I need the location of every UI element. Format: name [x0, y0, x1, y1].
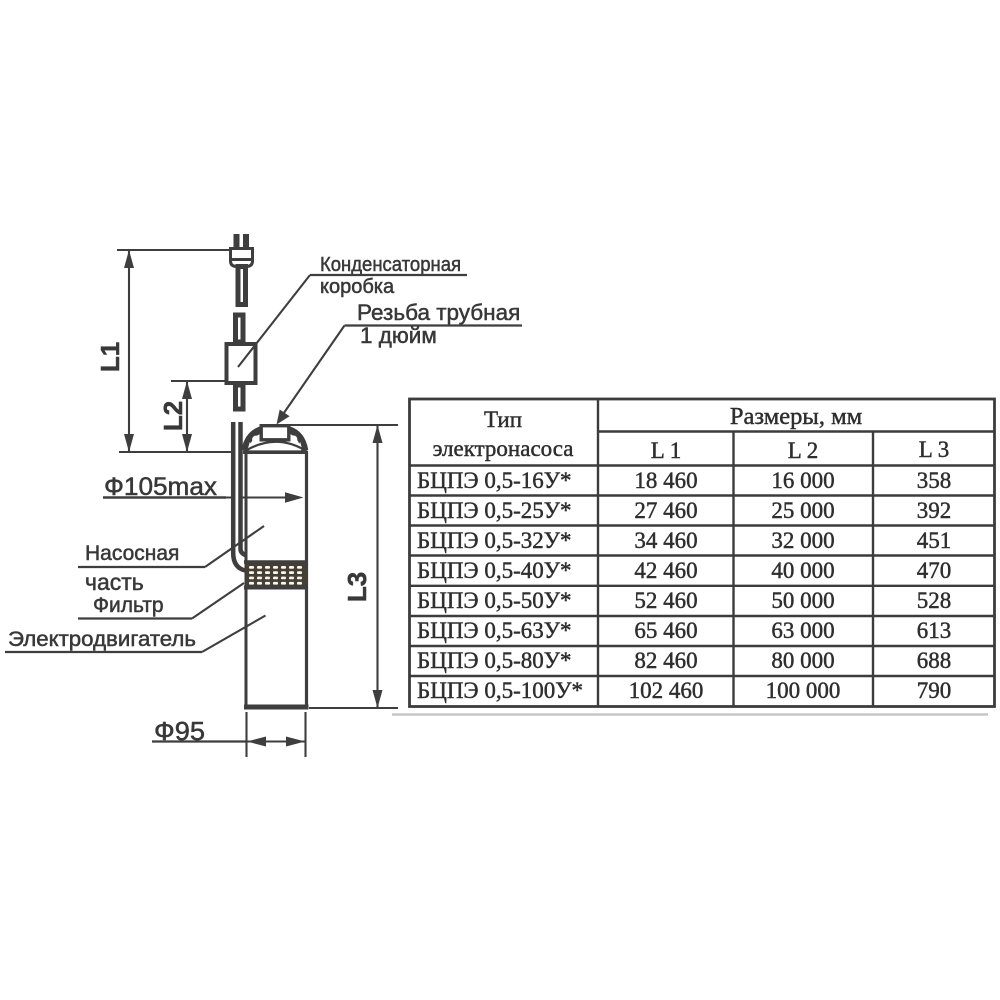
- svg-text:БЦПЭ 0,5-50У*: БЦПЭ 0,5-50У*: [417, 588, 572, 613]
- svg-text:42 460: 42 460: [634, 558, 697, 583]
- svg-text:613: 613: [917, 618, 952, 643]
- svg-text:БЦПЭ 0,5-63У*: БЦПЭ 0,5-63У*: [417, 618, 572, 643]
- svg-text:32 000: 32 000: [771, 528, 834, 553]
- svg-text:коробка: коробка: [320, 276, 395, 298]
- svg-text:L1: L1: [95, 342, 125, 372]
- svg-text:Насосная: Насосная: [85, 542, 179, 565]
- svg-text:392: 392: [917, 498, 952, 523]
- svg-text:Фильтр: Фильтр: [93, 594, 164, 617]
- svg-text:40 000: 40 000: [771, 558, 834, 583]
- svg-text:Электродвигатель: Электродвигатель: [8, 627, 196, 651]
- svg-text:Тип: Тип: [484, 407, 522, 432]
- svg-text:Ф95: Ф95: [154, 716, 205, 746]
- svg-text:102 460: 102 460: [629, 678, 704, 703]
- svg-text:34 460: 34 460: [634, 528, 697, 553]
- svg-text:L 1: L 1: [651, 438, 681, 463]
- svg-text:18 460: 18 460: [634, 468, 697, 493]
- svg-text:688: 688: [917, 648, 952, 673]
- svg-text:27 460: 27 460: [634, 498, 697, 523]
- svg-text:528: 528: [917, 588, 952, 613]
- svg-text:Резьба трубная: Резьба трубная: [357, 300, 520, 325]
- svg-text:470: 470: [917, 558, 952, 583]
- svg-text:16 000: 16 000: [771, 468, 834, 493]
- svg-text:L 2: L 2: [788, 438, 818, 463]
- svg-text:L 3: L 3: [919, 437, 949, 462]
- svg-text:358: 358: [917, 468, 952, 493]
- svg-text:L2: L2: [158, 401, 188, 431]
- svg-text:Конденсаторная: Конденсаторная: [320, 254, 461, 276]
- svg-text:Размеры, мм: Размеры, мм: [730, 403, 862, 430]
- svg-text:БЦПЭ 0,5-16У*: БЦПЭ 0,5-16У*: [417, 468, 572, 493]
- svg-text:электронасоса: электронасоса: [433, 436, 574, 461]
- svg-text:63 000: 63 000: [771, 618, 834, 643]
- svg-text:80 000: 80 000: [771, 648, 834, 673]
- svg-text:БЦПЭ 0,5-40У*: БЦПЭ 0,5-40У*: [417, 558, 572, 583]
- svg-text:50 000: 50 000: [771, 588, 834, 613]
- svg-text:БЦПЭ 0,5-25У*: БЦПЭ 0,5-25У*: [417, 498, 572, 523]
- svg-text:L3: L3: [342, 572, 372, 602]
- svg-text:790: 790: [917, 678, 952, 703]
- svg-text:451: 451: [917, 528, 952, 553]
- svg-text:1 дюйм: 1 дюйм: [360, 323, 437, 348]
- svg-text:БЦПЭ 0,5-100У*: БЦПЭ 0,5-100У*: [417, 678, 583, 703]
- svg-text:52 460: 52 460: [634, 588, 697, 613]
- svg-text:БЦПЭ 0,5-80У*: БЦПЭ 0,5-80У*: [417, 648, 572, 673]
- svg-text:25 000: 25 000: [771, 498, 834, 523]
- svg-text:65 460: 65 460: [634, 618, 697, 643]
- svg-text:Ф105max: Ф105max: [104, 473, 218, 501]
- svg-text:часть: часть: [85, 569, 144, 595]
- svg-text:100 000: 100 000: [766, 678, 841, 703]
- svg-text:БЦПЭ 0,5-32У*: БЦПЭ 0,5-32У*: [417, 528, 572, 553]
- svg-text:82 460: 82 460: [634, 648, 697, 673]
